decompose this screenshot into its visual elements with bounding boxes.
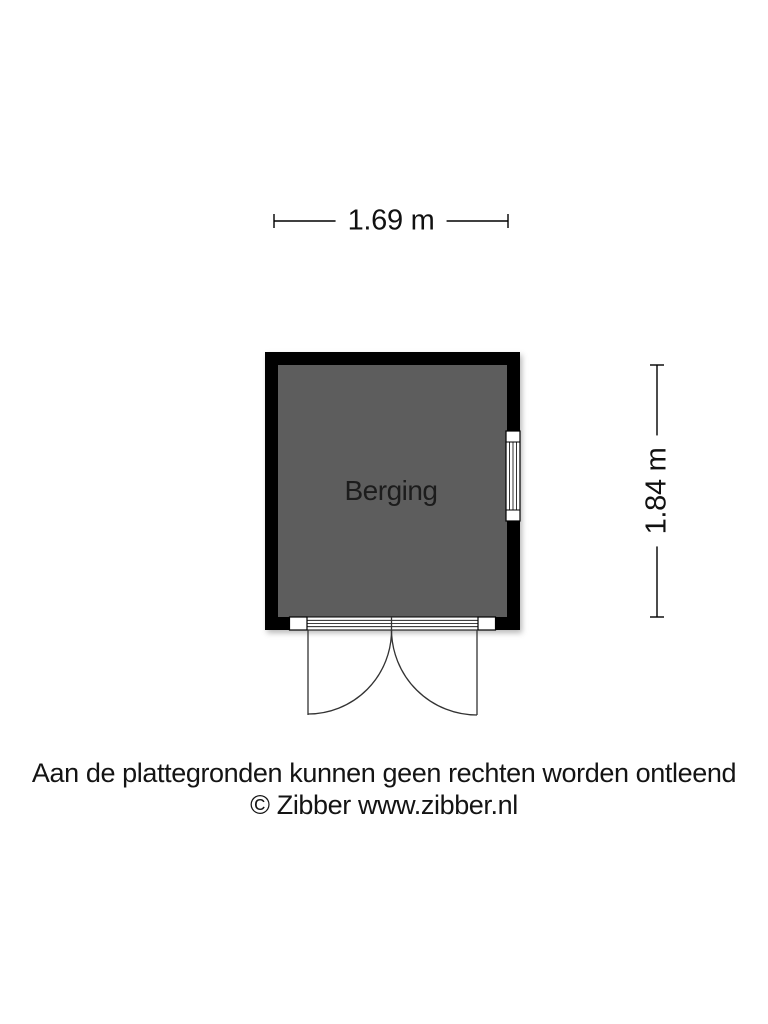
- footer: Aan de plattegronden kunnen geen rechten…: [0, 758, 768, 821]
- door-jamb-right: [478, 617, 496, 630]
- width-dimension-label: 1.69 m: [336, 205, 447, 238]
- footer-disclaimer: Aan de plattegronden kunnen geen rechten…: [0, 758, 768, 790]
- floorplan-page: 1.69 m 1.84 m Berging Aan de plattegrond…: [0, 0, 768, 1024]
- double-door-symbol: [308, 617, 477, 715]
- footer-copyright: © Zibber www.zibber.nl: [0, 790, 768, 822]
- door-jamb-left: [290, 617, 308, 630]
- window-symbol: [506, 431, 520, 521]
- height-dimension-label: 1.84 m: [641, 436, 674, 547]
- door-swing-arc-right: [392, 630, 478, 715]
- room-name-label: Berging: [344, 475, 437, 507]
- door-swing-arc-left: [308, 630, 392, 714]
